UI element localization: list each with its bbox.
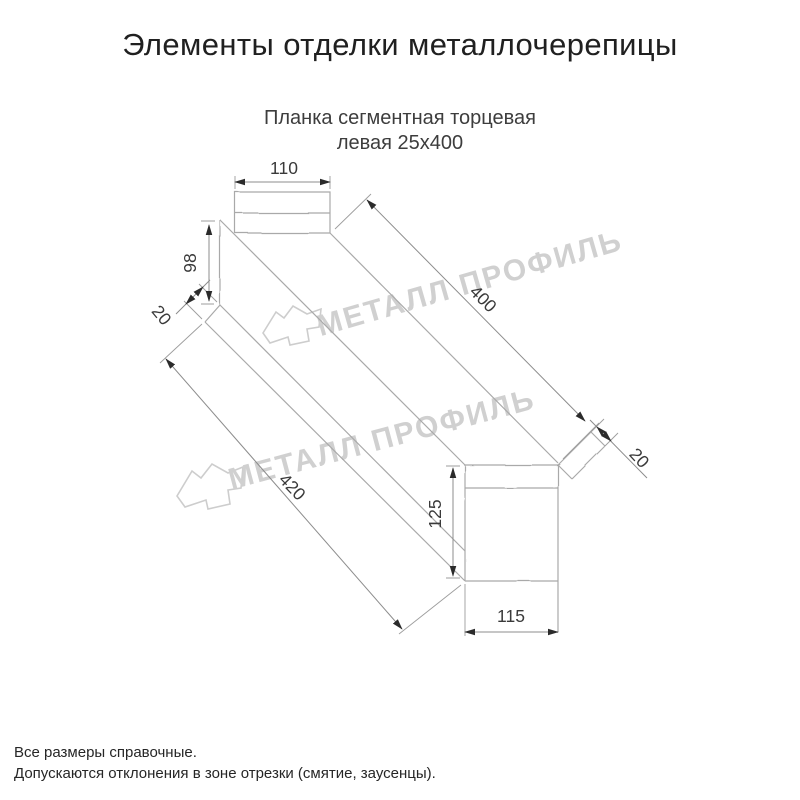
dim-label-20-left: 20	[148, 301, 176, 329]
footer-note-1: Все размеры справочные.	[14, 742, 784, 763]
dim-label-125: 125	[425, 499, 445, 528]
dim-label-20-right: 20	[625, 444, 653, 472]
footer-notes: Все размеры справочные. Допускаются откл…	[14, 742, 784, 784]
technical-drawing: МЕТАЛЛ ПРОФИЛЬ МЕТАЛЛ ПРОФИЛЬ	[0, 0, 800, 800]
dim-label-98: 98	[180, 253, 200, 272]
dimension-labels: 110 98 20 400 420 125 115 20	[148, 158, 654, 626]
dim-label-115: 115	[497, 606, 525, 626]
dim-label-110: 110	[270, 158, 298, 178]
strip-hem-edge	[205, 322, 465, 581]
right-end-hem-piece	[558, 432, 605, 479]
watermark-lower: МЕТАЛЛ ПРОФИЛЬ	[177, 383, 539, 509]
left-end-hem-fold	[205, 305, 220, 322]
watermark-text: МЕТАЛЛ ПРОФИЛЬ	[313, 224, 626, 343]
catalog-page: { "title": "Элементы отделки металлочере…	[0, 0, 800, 800]
footer-note-2: Допускаются отклонения в зоне отрезки (с…	[14, 763, 784, 784]
watermark-text: МЕТАЛЛ ПРОФИЛЬ	[225, 383, 539, 497]
watermark-upper: МЕТАЛЛ ПРОФИЛЬ	[263, 224, 626, 345]
dimension-bottom-length	[166, 359, 402, 629]
dimension-left-hem	[176, 280, 210, 314]
